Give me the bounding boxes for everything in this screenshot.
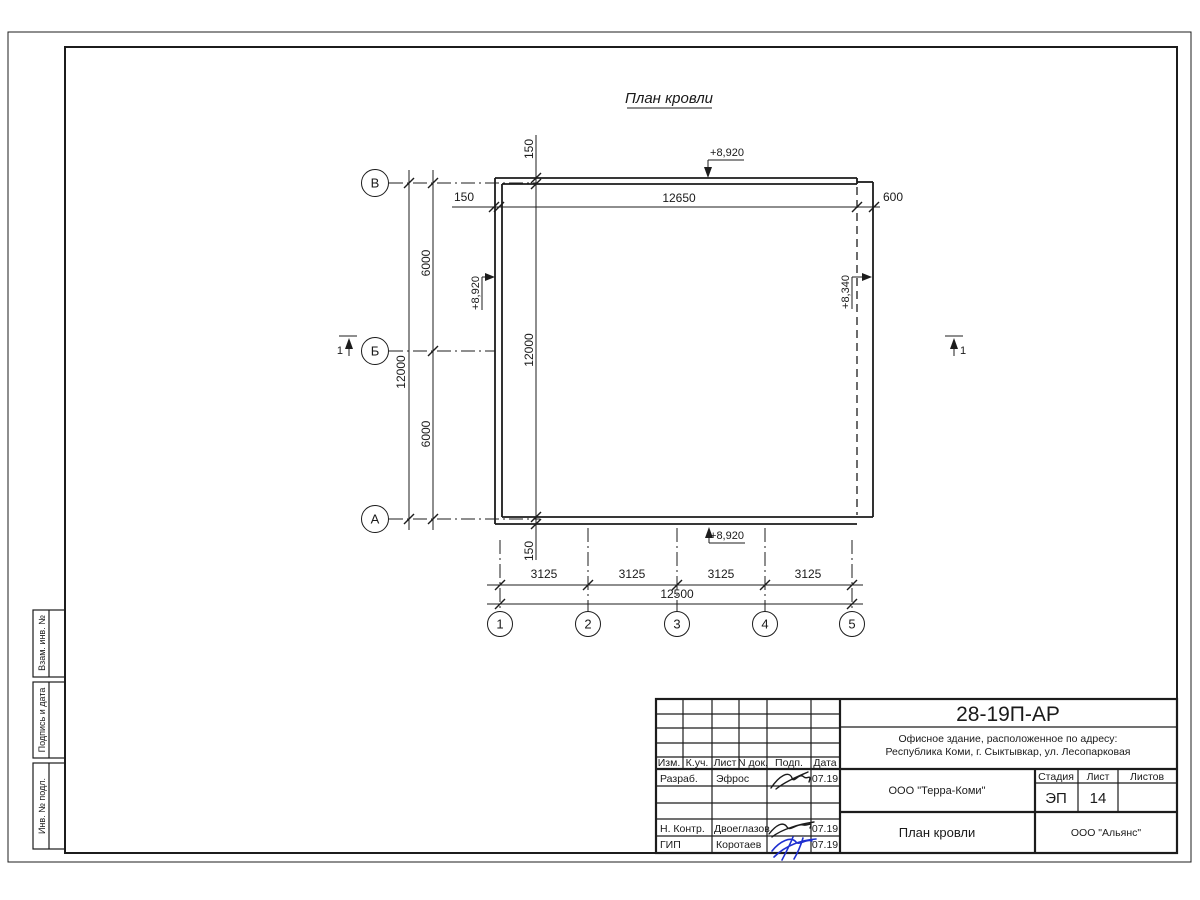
object-address-line1: Офисное здание, расположенное по адресу: bbox=[899, 733, 1118, 745]
dim-3125-3: 3125 bbox=[708, 567, 735, 581]
dim-top-span: 12650 bbox=[662, 191, 696, 205]
axis-marker-col-5: 5 bbox=[840, 612, 865, 637]
col-podp: Подп. bbox=[775, 757, 803, 769]
margin-box-label: Взам. инв. № bbox=[37, 615, 47, 671]
dim-left-segments: 6000 6000 bbox=[419, 170, 438, 530]
axis-marker-col-3: 3 bbox=[665, 612, 690, 637]
elevation-mark-left: +8,920 bbox=[470, 273, 495, 310]
dim-right-offset: 600 bbox=[883, 190, 903, 204]
margin-box-label: Подпись и дата bbox=[37, 688, 47, 753]
axis-marker-row-Bb: Б bbox=[362, 338, 389, 365]
date: 07.19 bbox=[812, 823, 838, 835]
dim-inner-150-top: 150 bbox=[522, 139, 536, 159]
elevation-value: +8,340 bbox=[840, 275, 852, 309]
axis-label: 1 bbox=[496, 617, 503, 632]
elevation-mark-top: +8,920 bbox=[704, 147, 744, 178]
signature-scribble-blue bbox=[772, 837, 816, 860]
axis-marker-col-4: 4 bbox=[753, 612, 778, 637]
stage-label: Стадия bbox=[1038, 771, 1074, 783]
axis-label: 2 bbox=[584, 617, 591, 632]
col-kuch: К.уч. bbox=[686, 757, 709, 769]
axis-marker-col-1: 1 bbox=[488, 612, 513, 637]
title-block-header-row: Изм. К.уч. Лист N док. Подп. Дата bbox=[658, 757, 837, 769]
section-number: 1 bbox=[960, 345, 966, 357]
margin-attribute-boxes: Взам. инв. № Подпись и дата Инв. № подл. bbox=[33, 610, 65, 849]
elevation-mark-right: +8,340 bbox=[840, 273, 872, 309]
stage-value: ЭП bbox=[1045, 790, 1067, 807]
axis-marker-col-2: 2 bbox=[576, 612, 601, 637]
role: Разраб. bbox=[660, 773, 698, 785]
section-number: 1 bbox=[337, 345, 343, 357]
dim-left-total: 12000 bbox=[394, 170, 414, 530]
elevation-value: +8,920 bbox=[710, 147, 744, 159]
signature-row-ncontrol: Н. Контр. Двоеглазов 07.19 bbox=[660, 822, 838, 837]
dim-inner-vertical: 150 12000 150 bbox=[522, 135, 541, 561]
dim-3125-1: 3125 bbox=[531, 567, 558, 581]
axis-label: Б bbox=[371, 344, 380, 359]
dim-top-row: 150 12650 600 bbox=[452, 190, 903, 212]
dim-12500: 12500 bbox=[660, 587, 694, 601]
axis-marker-row-A: А bbox=[362, 506, 389, 533]
col-ndok: N док. bbox=[738, 757, 768, 769]
dim-left-6000-top: 6000 bbox=[419, 249, 433, 276]
axis-label: В bbox=[371, 176, 380, 191]
elevation-mark-bottom: +8,920 bbox=[705, 527, 745, 543]
role: Н. Контр. bbox=[660, 823, 705, 835]
signature-scribble bbox=[769, 822, 814, 837]
plan-title: План кровли bbox=[625, 90, 714, 107]
sheets-label: Листов bbox=[1130, 771, 1165, 783]
contractor-company: ООО "Альянс" bbox=[1071, 827, 1141, 839]
role: ГИП bbox=[660, 839, 681, 851]
drawing-title: План кровли bbox=[625, 90, 714, 108]
date: 07.19 bbox=[812, 773, 838, 785]
roof-outline bbox=[495, 178, 873, 524]
object-address-line2: Республика Коми, г. Сыктывкар, ул. Лесоп… bbox=[886, 746, 1131, 758]
section-mark-right: 1 bbox=[945, 336, 966, 357]
elevation-value: +8,920 bbox=[470, 276, 482, 310]
drawing-name: План кровли bbox=[899, 825, 976, 840]
axis-label: 4 bbox=[761, 617, 768, 632]
signature-row-gip: ГИП Коротаев 07.19 bbox=[660, 837, 838, 860]
name: Коротаев bbox=[716, 839, 762, 851]
title-block: Изм. К.уч. Лист N док. Подп. Дата Разраб… bbox=[656, 699, 1177, 860]
dim-inner-150-bottom: 150 bbox=[522, 541, 536, 561]
sheet-label: Лист bbox=[1087, 771, 1110, 783]
dim-3125-2: 3125 bbox=[619, 567, 646, 581]
dim-left-6000-bottom: 6000 bbox=[419, 420, 433, 447]
section-mark-left: 1 bbox=[337, 336, 357, 357]
dim-3125-4: 3125 bbox=[795, 567, 822, 581]
col-data: Дата bbox=[813, 757, 836, 769]
axis-label: 5 bbox=[848, 617, 855, 632]
drawing-sheet: Взам. инв. № Подпись и дата Инв. № подл.… bbox=[0, 0, 1200, 900]
axis-lines bbox=[389, 183, 852, 612]
dim-bottom-total: 12500 bbox=[487, 587, 863, 609]
name: Двоеглазов bbox=[714, 823, 770, 835]
axis-label: А bbox=[371, 512, 380, 527]
col-izm: Изм. bbox=[658, 757, 681, 769]
axis-marker-row-B: В bbox=[362, 170, 389, 197]
date: 07.19 bbox=[812, 839, 838, 851]
axis-label: 3 bbox=[673, 617, 680, 632]
design-company: ООО "Терра-Коми" bbox=[888, 785, 985, 797]
dim-inner-12000: 12000 bbox=[522, 333, 536, 367]
doc-number: 28-19П-АР bbox=[956, 703, 1060, 726]
sheet-value: 14 bbox=[1090, 790, 1107, 807]
dim-overhang-left: 150 bbox=[454, 190, 474, 204]
roof-extension bbox=[857, 182, 873, 517]
col-list: Лист bbox=[714, 757, 737, 769]
dim-left-12000: 12000 bbox=[394, 355, 408, 389]
elevation-value: +8,920 bbox=[710, 530, 744, 542]
name: Эфрос bbox=[716, 773, 749, 785]
margin-box-label: Инв. № подл. bbox=[37, 778, 47, 834]
